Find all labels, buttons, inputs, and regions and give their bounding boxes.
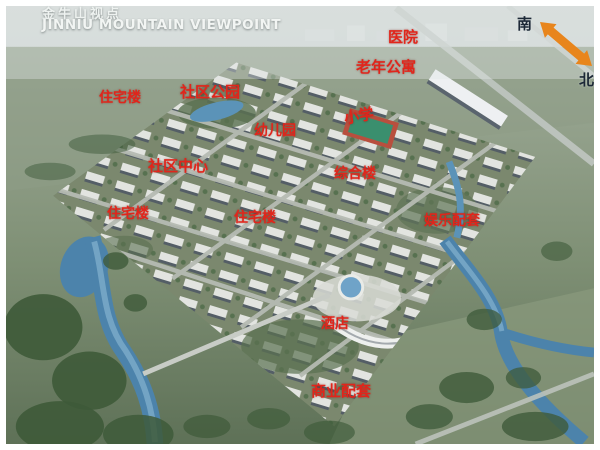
aerial-scene — [6, 6, 594, 444]
aerial-rendering-photo — [6, 6, 594, 444]
haze — [6, 6, 594, 79]
central-pond — [339, 276, 363, 299]
screenshot-frame: 金牛山视点 JINNIU MOUNTAIN VIEWPOINT 医院 老年公寓 … — [0, 0, 600, 450]
